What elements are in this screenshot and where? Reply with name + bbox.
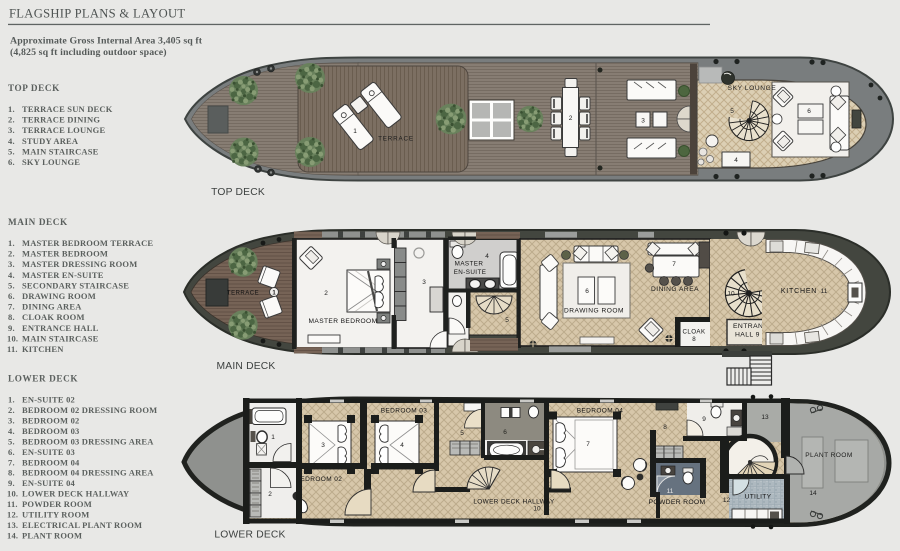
svg-text:UTILITY ROOM: UTILITY ROOM [22, 510, 90, 520]
svg-text:3: 3 [321, 442, 325, 449]
svg-text:MAIN DECK: MAIN DECK [216, 361, 275, 372]
svg-text:14: 14 [809, 490, 817, 497]
svg-text:10: 10 [727, 291, 735, 298]
svg-text:6.: 6. [8, 447, 15, 457]
svg-text:POWDER ROOM: POWDER ROOM [22, 499, 92, 509]
svg-text:LOWER DECK HALLWAY: LOWER DECK HALLWAY [473, 499, 555, 506]
svg-text:BEDROOM 03 DRESSING AREA: BEDROOM 03 DRESSING AREA [22, 436, 154, 446]
svg-text:1.: 1. [8, 104, 15, 114]
svg-text:MASTER BEDROOM: MASTER BEDROOM [309, 318, 378, 325]
svg-text:8.: 8. [8, 468, 15, 478]
svg-text:DINING AREA: DINING AREA [651, 286, 699, 293]
svg-text:EN-SUITE 04: EN-SUITE 04 [22, 478, 76, 488]
svg-text:4: 4 [485, 253, 489, 260]
svg-text:11.: 11. [7, 499, 18, 509]
svg-text:CLOAK ROOM: CLOAK ROOM [22, 312, 85, 322]
svg-text:3.: 3. [8, 125, 15, 135]
svg-text:7: 7 [586, 441, 590, 448]
svg-text:CLOAK: CLOAK [683, 329, 706, 336]
svg-text:DRAWING ROOM: DRAWING ROOM [564, 308, 624, 315]
svg-text:3: 3 [641, 118, 645, 125]
svg-text:1.: 1. [8, 238, 15, 248]
svg-text:10: 10 [533, 506, 541, 513]
svg-text:EN-SUITE 02: EN-SUITE 02 [22, 395, 75, 405]
svg-text:8: 8 [692, 336, 696, 343]
svg-text:HALL 9: HALL 9 [735, 332, 760, 339]
svg-text:MASTER BEDROOM: MASTER BEDROOM [22, 249, 108, 259]
svg-text:7.: 7. [8, 457, 15, 467]
svg-text:TERRACE SUN DECK: TERRACE SUN DECK [22, 104, 113, 114]
svg-text:BEDROOM 02 DRESSING ROOM: BEDROOM 02 DRESSING ROOM [22, 405, 157, 415]
svg-text:4.: 4. [8, 426, 15, 436]
svg-text:LOWER DECK: LOWER DECK [8, 374, 78, 384]
svg-text:TERRACE LOUNGE: TERRACE LOUNGE [22, 125, 105, 135]
svg-text:EN-SUITE: EN-SUITE [454, 269, 487, 276]
svg-text:13: 13 [761, 414, 769, 421]
svg-text:MASTER DRESSING ROOM: MASTER DRESSING ROOM [22, 259, 137, 269]
svg-text:6.: 6. [8, 291, 15, 301]
svg-text:5.: 5. [8, 436, 15, 446]
svg-text:(4,825 sq ft including outdoo: (4,825 sq ft including outdoor space) [10, 47, 167, 58]
svg-text:7.: 7. [8, 302, 15, 312]
svg-text:9: 9 [702, 416, 706, 423]
svg-text:6.: 6. [8, 157, 15, 167]
svg-text:2.: 2. [8, 115, 15, 125]
svg-text:5: 5 [730, 108, 734, 115]
svg-text:6: 6 [807, 108, 811, 115]
svg-text:DRAWING ROOM: DRAWING ROOM [22, 291, 96, 301]
svg-text:3.: 3. [8, 416, 15, 426]
svg-text:UTILITY: UTILITY [745, 494, 772, 501]
svg-text:11: 11 [821, 288, 828, 295]
svg-text:MASTER BEDROOM TERRACE: MASTER BEDROOM TERRACE [22, 238, 153, 248]
svg-text:3.: 3. [8, 259, 15, 269]
svg-text:FLAGSHIP PLANS & LAYOUT: FLAGSHIP PLANS & LAYOUT [9, 7, 185, 21]
svg-text:2: 2 [324, 290, 328, 297]
svg-text:10.: 10. [7, 489, 18, 499]
svg-text:SKY LOUNGE: SKY LOUNGE [22, 157, 80, 167]
svg-text:1.: 1. [8, 395, 15, 405]
svg-text:KITCHEN: KITCHEN [781, 288, 817, 295]
svg-text:TERRACE: TERRACE [378, 136, 414, 143]
svg-text:EN-SUITE 03: EN-SUITE 03 [22, 447, 75, 457]
svg-text:8.: 8. [8, 312, 15, 322]
svg-text:4: 4 [400, 442, 404, 449]
svg-text:4: 4 [734, 157, 738, 164]
svg-text:6: 6 [503, 429, 507, 436]
svg-text:PLANT ROOM: PLANT ROOM [805, 452, 852, 459]
svg-text:MAIN DECK: MAIN DECK [8, 217, 68, 227]
svg-text:9.: 9. [8, 323, 15, 333]
svg-text:1: 1 [271, 434, 275, 441]
svg-text:7: 7 [672, 261, 676, 268]
svg-text:2: 2 [569, 115, 573, 122]
svg-text:1: 1 [353, 128, 357, 135]
svg-text:TOP DECK: TOP DECK [211, 187, 265, 198]
svg-text:ELECTRICAL PLANT ROOM: ELECTRICAL PLANT ROOM [22, 520, 142, 530]
svg-text:BEDROOM 02: BEDROOM 02 [296, 476, 343, 483]
svg-text:9.: 9. [8, 478, 15, 488]
svg-text:10.: 10. [7, 333, 18, 343]
svg-text:4.: 4. [8, 136, 15, 146]
svg-text:LOWER DECK: LOWER DECK [214, 530, 285, 541]
svg-text:8: 8 [663, 424, 667, 431]
svg-text:14.: 14. [7, 531, 18, 541]
svg-text:11.: 11. [7, 344, 18, 354]
svg-text:MASTER: MASTER [455, 261, 484, 268]
svg-text:12.: 12. [7, 510, 18, 520]
svg-text:TOP DECK: TOP DECK [8, 83, 60, 93]
svg-text:BEDROOM 02: BEDROOM 02 [22, 416, 80, 426]
svg-text:5.: 5. [8, 280, 15, 290]
svg-text:TERRACE DINING: TERRACE DINING [22, 115, 100, 125]
svg-text:PLANT ROOM: PLANT ROOM [22, 531, 82, 541]
svg-text:BEDROOM 04 DRESSING AREA: BEDROOM 04 DRESSING AREA [22, 468, 154, 478]
svg-text:DINING AREA: DINING AREA [22, 302, 82, 312]
svg-text:BEDROOM 04: BEDROOM 04 [577, 408, 624, 415]
svg-text:6: 6 [585, 288, 589, 295]
svg-text:BEDROOM 03: BEDROOM 03 [381, 408, 428, 415]
svg-text:STUDY AREA: STUDY AREA [22, 136, 79, 146]
svg-text:4.: 4. [8, 270, 15, 280]
svg-text:MAIN STAIRCASE: MAIN STAIRCASE [22, 333, 99, 343]
svg-text:BEDROOM 04: BEDROOM 04 [22, 457, 80, 467]
svg-text:KITCHEN: KITCHEN [22, 344, 64, 354]
svg-text:Approximate Gross Internal Are: Approximate Gross Internal Area 3,405 sq… [10, 36, 203, 47]
svg-text:5.: 5. [8, 146, 15, 156]
svg-text:SKY LOUNGE: SKY LOUNGE [728, 85, 777, 92]
svg-text:SECONDARY STAIRCASE: SECONDARY STAIRCASE [22, 280, 129, 290]
svg-text:2: 2 [268, 491, 272, 498]
svg-text:13.: 13. [7, 520, 18, 530]
svg-text:BEDROOM 03: BEDROOM 03 [22, 426, 80, 436]
svg-text:LOWER DECK HALLWAY: LOWER DECK HALLWAY [22, 489, 129, 499]
svg-text:2.: 2. [8, 249, 15, 259]
svg-text:MAIN STAIRCASE: MAIN STAIRCASE [22, 146, 99, 156]
svg-text:TERRACE: TERRACE [227, 291, 259, 297]
svg-text:5: 5 [460, 430, 464, 437]
svg-text:5: 5 [505, 317, 509, 324]
svg-text:11: 11 [667, 488, 674, 495]
svg-text:ENTRANCE HALL: ENTRANCE HALL [22, 323, 99, 333]
svg-text:3: 3 [422, 279, 426, 286]
svg-text:12: 12 [723, 497, 731, 504]
svg-text:2.: 2. [8, 405, 15, 415]
svg-text:MASTER EN-SUITE: MASTER EN-SUITE [22, 270, 104, 280]
